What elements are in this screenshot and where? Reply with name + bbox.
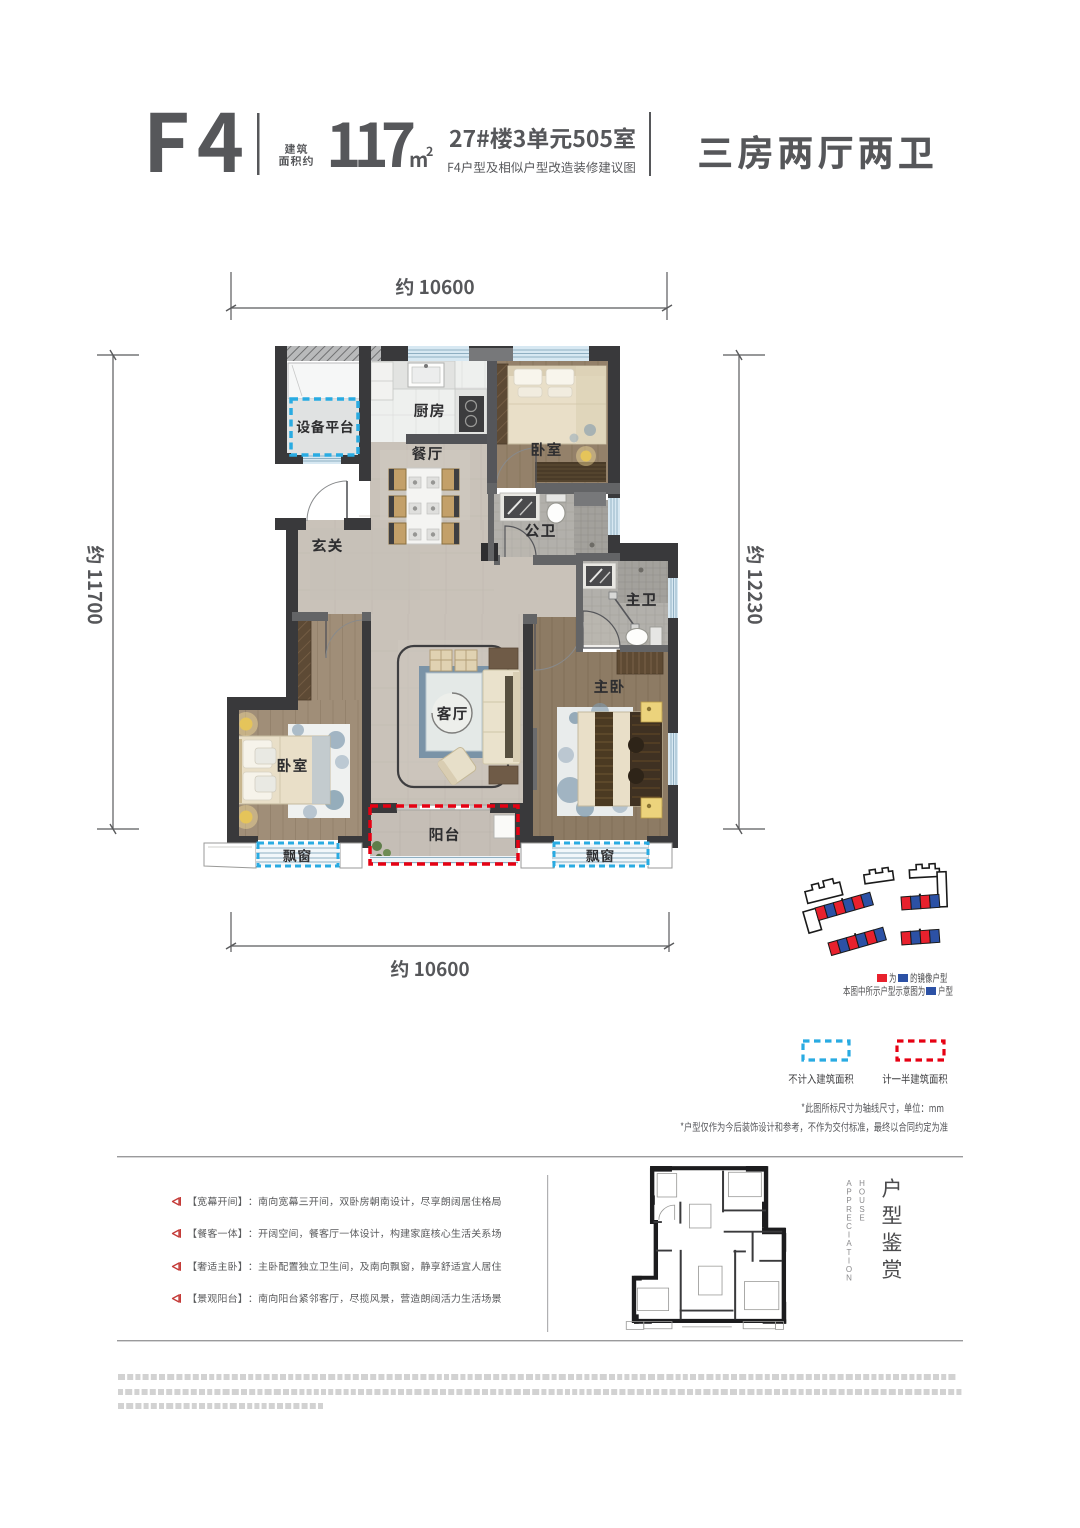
svg-text:E: E bbox=[859, 1213, 864, 1222]
svg-text:N: N bbox=[846, 1274, 852, 1283]
